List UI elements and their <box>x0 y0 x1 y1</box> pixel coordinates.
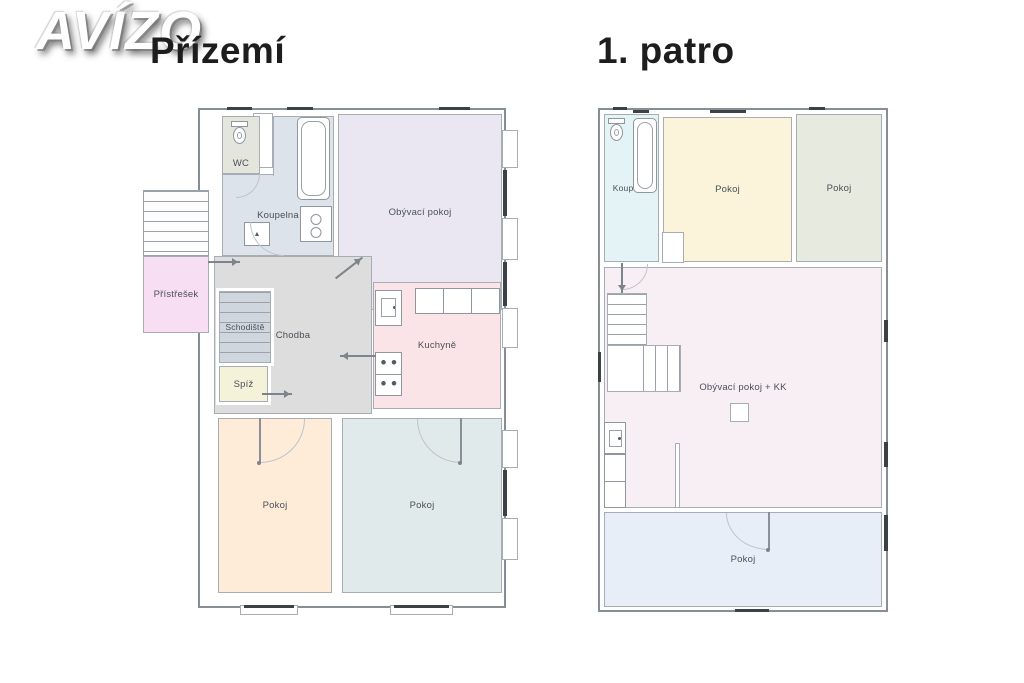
sink-icon <box>375 290 402 326</box>
window-bar <box>503 262 507 306</box>
floor-title-ground: Přízemí <box>150 30 285 72</box>
room-label: Kuchyně <box>418 340 456 351</box>
window-bar <box>613 107 627 111</box>
window-bar <box>503 470 507 516</box>
room-pristresek: Přístřešek <box>143 256 209 333</box>
window-bar <box>710 110 746 114</box>
room-label: WC <box>233 158 249 169</box>
exterior-stairs <box>143 190 209 256</box>
window-bar <box>884 320 888 342</box>
room-label: Pokoj <box>827 183 852 194</box>
counter-divider <box>471 289 472 313</box>
window-sill <box>502 518 518 560</box>
bathtub-icon <box>297 117 330 200</box>
bathtub-icon <box>633 118 657 193</box>
staircase-lower-run <box>607 345 681 392</box>
room-schodiste: Schodiště <box>219 291 271 363</box>
window-bar <box>884 515 888 551</box>
room-label: Přístřešek <box>154 289 199 300</box>
staircase-upper-run <box>607 293 647 346</box>
room-label: Pokoj <box>263 500 288 511</box>
kitchen-counter <box>604 454 626 508</box>
window-sill <box>502 308 518 348</box>
window-bar <box>287 107 313 111</box>
staircase-treads <box>643 346 680 391</box>
plan-ground: Přístřešek Koupelna WC ▲ Obývací pokoj C… <box>140 100 525 625</box>
washing-machine-icon <box>300 206 332 242</box>
window-bar <box>244 605 294 609</box>
door-handle-dot <box>458 461 462 465</box>
room-pokoj-2: Pokoj <box>796 114 882 262</box>
counter-divider <box>443 289 444 313</box>
chimney <box>730 403 749 422</box>
kitchen-counter <box>415 288 500 314</box>
floor-title-first: 1. patro <box>597 30 735 72</box>
window-bar <box>809 107 825 111</box>
room-label: Pokoj <box>715 184 740 195</box>
stove-icon <box>375 352 402 396</box>
room-label: Pokoj <box>410 500 435 511</box>
door-handle-dot <box>766 548 770 552</box>
room-label: Obývací pokoj <box>389 207 452 218</box>
toilet-bowl-icon <box>233 127 246 144</box>
wall-stub <box>675 443 680 508</box>
wall-notch <box>662 232 684 263</box>
door-leaf <box>768 512 770 550</box>
window-bar <box>227 107 252 111</box>
room-spiz: Spíž <box>219 366 268 402</box>
sink-icon <box>604 422 626 454</box>
room-pokoj-2: Pokoj <box>342 418 502 593</box>
room-label: Koupelna <box>257 210 299 221</box>
window-bar <box>735 609 769 613</box>
window-sill <box>502 430 518 468</box>
room-label: Chodba <box>276 330 310 341</box>
window-bar <box>598 352 602 382</box>
door-leaf <box>259 418 261 463</box>
floorplan-image: AVÍZO Přízemí 1. patro Přístřešek Koupel… <box>0 0 1024 683</box>
room-label: Spíž <box>234 379 254 390</box>
toilet-bowl-icon <box>610 124 623 141</box>
counter-divider <box>605 481 625 482</box>
room-label: Obývací pokoj + KK <box>699 382 786 393</box>
window-bar <box>394 605 449 609</box>
door-leaf <box>460 418 462 463</box>
room-label: Schodiště <box>224 322 265 332</box>
room-label: Pokoj <box>731 554 756 565</box>
door-handle-dot <box>257 461 261 465</box>
window-bar <box>633 110 649 114</box>
window-sill <box>502 218 518 260</box>
window-bar <box>439 107 470 111</box>
window-sill <box>502 130 518 168</box>
window-bar <box>503 170 507 216</box>
window-bar <box>884 442 888 467</box>
plan-first: Koupelna Pokoj Pokoj Obývací pokoj + KK <box>596 105 891 615</box>
